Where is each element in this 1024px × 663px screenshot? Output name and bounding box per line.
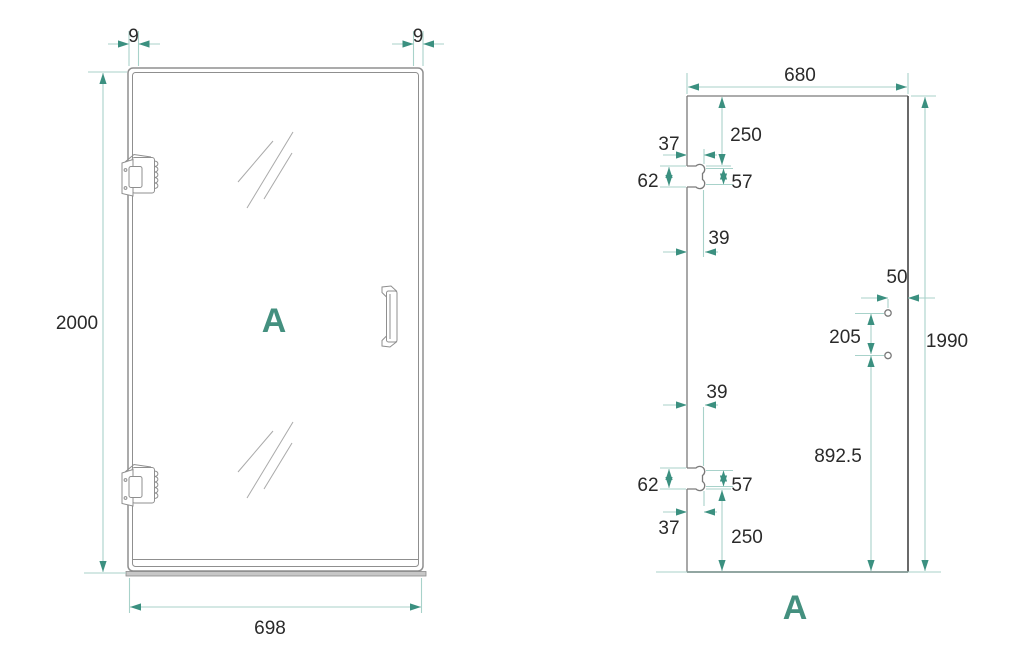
dim-hole-spacing: 205 xyxy=(829,314,884,356)
dim-top-cutout-width: 39 xyxy=(663,190,730,257)
dim-top-cutout-inset: 37 xyxy=(658,134,717,164)
dim-label: 62 xyxy=(637,171,658,192)
dim-label: 698 xyxy=(254,618,286,639)
view-label-a-right: A xyxy=(783,589,808,627)
dim-bottom-cutout-inset: 37 xyxy=(658,491,717,539)
view-label-a-left: A xyxy=(262,302,287,340)
handle-hole-bottom xyxy=(885,352,891,358)
dim-label: 9 xyxy=(128,26,139,47)
dim-label: 39 xyxy=(708,228,729,249)
dim-hole-to-bottom: 892.5 xyxy=(814,356,874,571)
dim-label: 50 xyxy=(886,267,907,288)
dim-top-cutout-height: 62 xyxy=(637,166,686,192)
dim-label: 1990 xyxy=(926,331,968,352)
dim-hole-to-edge: 50 xyxy=(861,267,935,308)
dim-label: 9 xyxy=(413,26,424,47)
dim-label: 250 xyxy=(730,125,762,146)
dim-glass-width: 680 xyxy=(687,65,908,94)
dim-bottom-cutout-height: 62 xyxy=(637,468,686,496)
dim-label: 62 xyxy=(637,475,658,496)
door-handle-icon xyxy=(382,286,397,347)
dim-door-width: 698 xyxy=(130,578,422,639)
dim-glass-height: 1990 xyxy=(911,96,968,571)
dim-label: 57 xyxy=(731,172,752,193)
dim-label: 892.5 xyxy=(814,446,862,467)
dim-label: 680 xyxy=(784,65,816,86)
dim-label: 37 xyxy=(658,134,679,155)
drawing-svg: 9 9 2000 698 xyxy=(0,0,1024,663)
dim-label: 2000 xyxy=(56,313,98,334)
handle-hole-top xyxy=(885,310,891,316)
hinge-cutout-top xyxy=(687,164,705,188)
dim-bottom-cutout-width: 39 xyxy=(663,382,728,466)
dim-top-cutout-notch: 57 xyxy=(706,169,753,194)
dim-bottom-cutout-notch: 57 xyxy=(706,471,753,497)
dim-label: 250 xyxy=(731,527,763,548)
bottom-sill xyxy=(126,572,426,577)
dim-frame-profile-right: 9 xyxy=(392,26,444,66)
dim-frame-profile-left: 9 xyxy=(108,26,160,66)
dim-label: 39 xyxy=(706,382,727,403)
door-front-view: 9 9 2000 698 xyxy=(56,26,444,639)
dim-label: 205 xyxy=(829,327,861,348)
glass-panel-view: 680 1990 250 37 xyxy=(637,65,968,627)
dim-label: 37 xyxy=(658,518,679,539)
dim-label: 57 xyxy=(731,475,752,496)
dim-bottom-edge-to-cutout: 250 xyxy=(706,489,763,571)
dim-door-height: 2000 xyxy=(56,72,127,573)
shower-door-technical-drawing: 9 9 2000 698 xyxy=(0,0,1024,663)
hinge-cutout-bottom xyxy=(687,466,705,490)
